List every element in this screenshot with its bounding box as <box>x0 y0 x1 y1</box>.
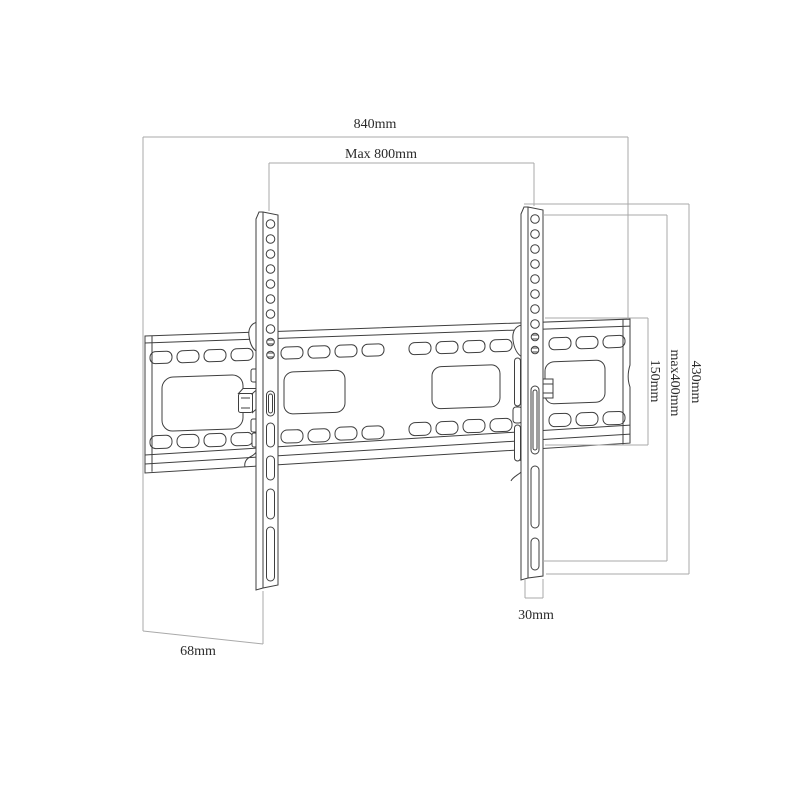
dim-label-bracket-height: 430mm <box>688 361 703 404</box>
dim-label-total-width: 840mm <box>354 117 397 132</box>
left-bracket <box>239 212 279 590</box>
dim-depth-line <box>143 591 263 644</box>
mount-diagram-page: 840mm Max 800mm 150mm max400mm 430mm 30m… <box>0 0 800 800</box>
dim-label-plate-height: 150mm <box>647 360 662 403</box>
dim-label-max-vesa-height: max400mm <box>667 350 682 417</box>
mount-diagram: 840mm Max 800mm 150mm max400mm 430mm 30m… <box>0 0 800 800</box>
dim-max-vesa-width-line <box>269 163 534 211</box>
dim-label-bracket-width: 30mm <box>518 608 554 623</box>
tilt-knob <box>239 389 259 413</box>
dim-label-depth: 68mm <box>180 644 216 659</box>
wall-plate <box>145 319 630 473</box>
dim-bracket-width-line <box>525 579 543 598</box>
right-bracket <box>511 207 553 580</box>
dim-label-max-vesa-width: Max 800mm <box>345 147 417 162</box>
